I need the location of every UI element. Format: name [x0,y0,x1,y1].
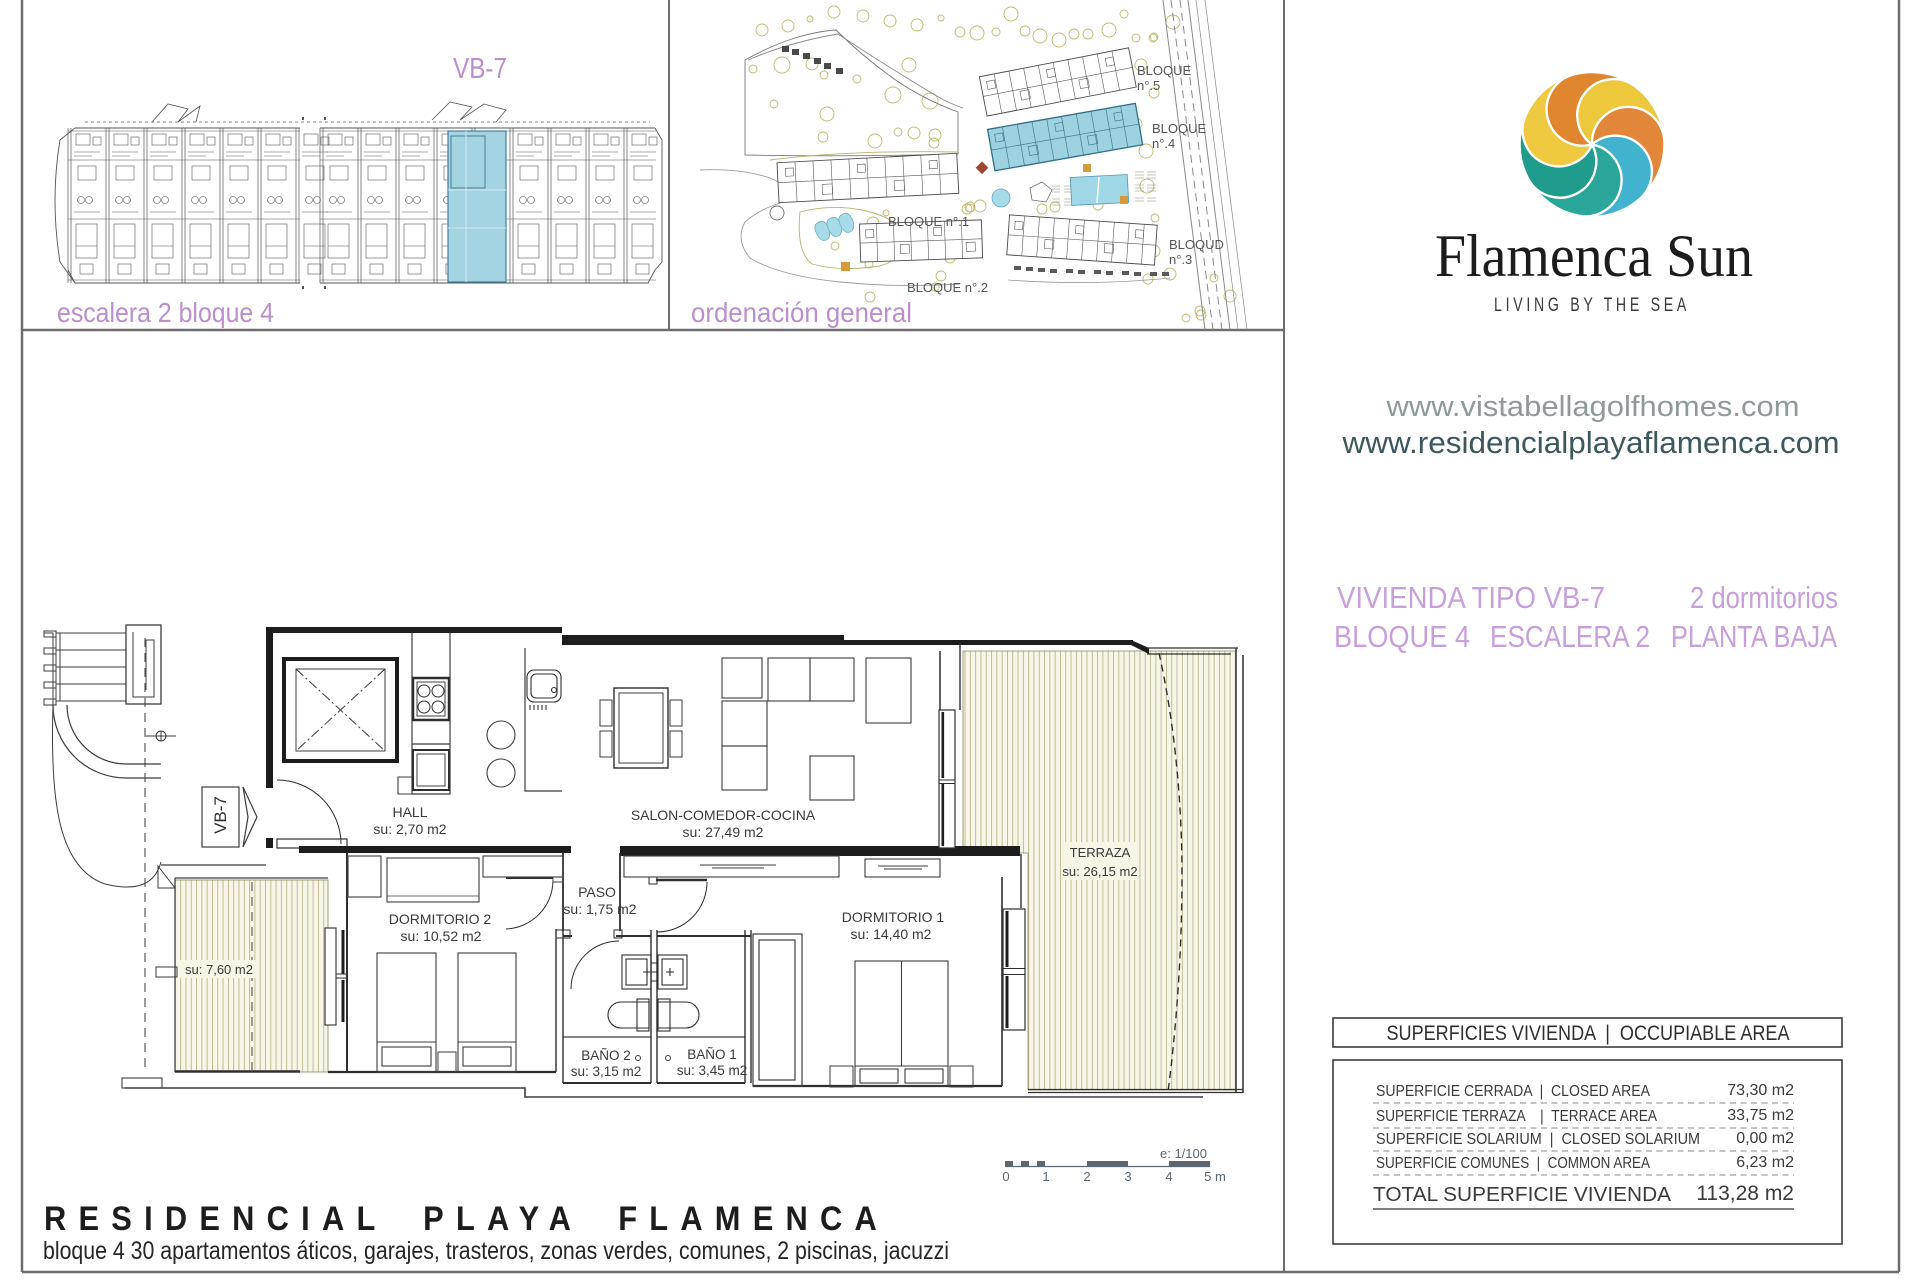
svg-text:su: 27,49 m2: su: 27,49 m2 [683,824,764,840]
svg-text:BLOQUE: BLOQUE [1152,121,1207,136]
svg-text:RESIDENCIAL PLAYA FLAMENCA: RESIDENCIAL PLAYA FLAMENCA [44,1200,889,1238]
svg-text:BAÑO 2: BAÑO 2 [581,1048,631,1063]
svg-text:e: 1/100: e: 1/100 [1160,1146,1207,1161]
svg-text:BLOQUE: BLOQUE [1137,63,1192,78]
svg-text:www.residencialplayaflamenca.c: www.residencialplayaflamenca.com [1341,425,1839,460]
svg-text:VB-7: VB-7 [453,53,507,85]
svg-text:su: 14,40 m2: su: 14,40 m2 [851,926,932,942]
svg-text:0,00 m2: 0,00 m2 [1736,1130,1794,1147]
svg-text:su: 1,75 m2: su: 1,75 m2 [563,901,636,917]
svg-text:BLOQUD: BLOQUD [1169,237,1224,252]
svg-text:su: 26,15 m2: su: 26,15 m2 [1062,864,1137,879]
svg-text:su: 3,15 m2: su: 3,15 m2 [571,1064,642,1079]
svg-text:ESCALERA 2: ESCALERA 2 [1490,619,1650,654]
svg-text:DORMITORIO 2: DORMITORIO 2 [389,911,492,927]
svg-text:SUPERFICIES VIVIENDA | OCCUP: SUPERFICIES VIVIENDA | OCCUPIABLE AREA [1387,1022,1790,1045]
svg-text:su: 3,45 m2: su: 3,45 m2 [677,1063,748,1078]
svg-text:n°.4: n°.4 [1152,136,1175,151]
svg-text:LIVING BY THE SEA: LIVING BY THE SEA [1494,295,1690,316]
svg-text:BLOQUE n°.1: BLOQUE n°.1 [888,214,969,229]
svg-text:SALON-COMEDOR-COCINA: SALON-COMEDOR-COCINA [631,807,816,823]
svg-text:SUPERFICIE COMUNES | COMMON: SUPERFICIE COMUNES | COMMON AREA [1376,1155,1651,1172]
svg-text:Flamenca Sun: Flamenca Sun [1435,223,1753,289]
svg-text:BLOQUE 4: BLOQUE 4 [1334,619,1470,654]
svg-text:TOTAL SUPERFICIE VIVIENDA: TOTAL SUPERFICIE VIVIENDA [1373,1184,1672,1206]
svg-text:3: 3 [1124,1169,1131,1184]
svg-text:SUPERFICIE SOLARIUM | CLOSED: SUPERFICIE SOLARIUM | CLOSED SOLARIUM [1376,1131,1700,1148]
svg-text:n°.5: n°.5 [1137,78,1160,93]
svg-text:bloque 4 30 apartamentos ático: bloque 4 30 apartamentos áticos, garajes… [43,1237,949,1265]
svg-text:su: 2,70 m2: su: 2,70 m2 [373,821,446,837]
svg-text:5 m: 5 m [1204,1169,1226,1184]
svg-text:PLANTA BAJA: PLANTA BAJA [1671,619,1837,654]
svg-text:6,23 m2: 6,23 m2 [1736,1154,1794,1171]
svg-text:escalera 2 bloque 4: escalera 2 bloque 4 [57,297,274,328]
svg-text:TERRAZA: TERRAZA [1070,845,1131,860]
svg-text:n°.3: n°.3 [1169,252,1192,267]
svg-text:73,30 m2: 73,30 m2 [1727,1082,1794,1099]
svg-text:DORMITORIO 1: DORMITORIO 1 [842,909,945,925]
svg-text:1: 1 [1042,1169,1049,1184]
svg-text:2: 2 [1083,1169,1090,1184]
svg-text:VIVIENDA TIPO VB-7: VIVIENDA TIPO VB-7 [1337,580,1605,615]
svg-text:ordenación general: ordenación general [691,297,912,328]
svg-text:VB-7: VB-7 [211,796,230,834]
svg-text:su: 10,52 m2: su: 10,52 m2 [401,928,482,944]
svg-text:2 dormitorios: 2 dormitorios [1690,580,1838,615]
svg-text:33,75 m2: 33,75 m2 [1727,1107,1794,1124]
svg-text:su: 7,60 m2: su: 7,60 m2 [185,962,253,977]
svg-text:BAÑO 1: BAÑO 1 [687,1047,737,1062]
svg-text:www.vistabellagolfhomes.com: www.vistabellagolfhomes.com [1385,391,1799,423]
svg-text:BLOQUE n°.2: BLOQUE n°.2 [907,280,988,295]
svg-text:4: 4 [1165,1169,1172,1184]
svg-text:0: 0 [1002,1169,1009,1184]
svg-text:113,28 m2: 113,28 m2 [1696,1182,1794,1205]
svg-text:HALL: HALL [392,804,427,820]
svg-text:SUPERFICIE TERRAZA | TERRA: SUPERFICIE TERRAZA | TERRACE AREA [1376,1108,1658,1125]
svg-text:SUPERFICIE CERRADA | CLOSED: SUPERFICIE CERRADA | CLOSED AREA [1376,1083,1651,1100]
svg-text:PASO: PASO [578,884,616,900]
